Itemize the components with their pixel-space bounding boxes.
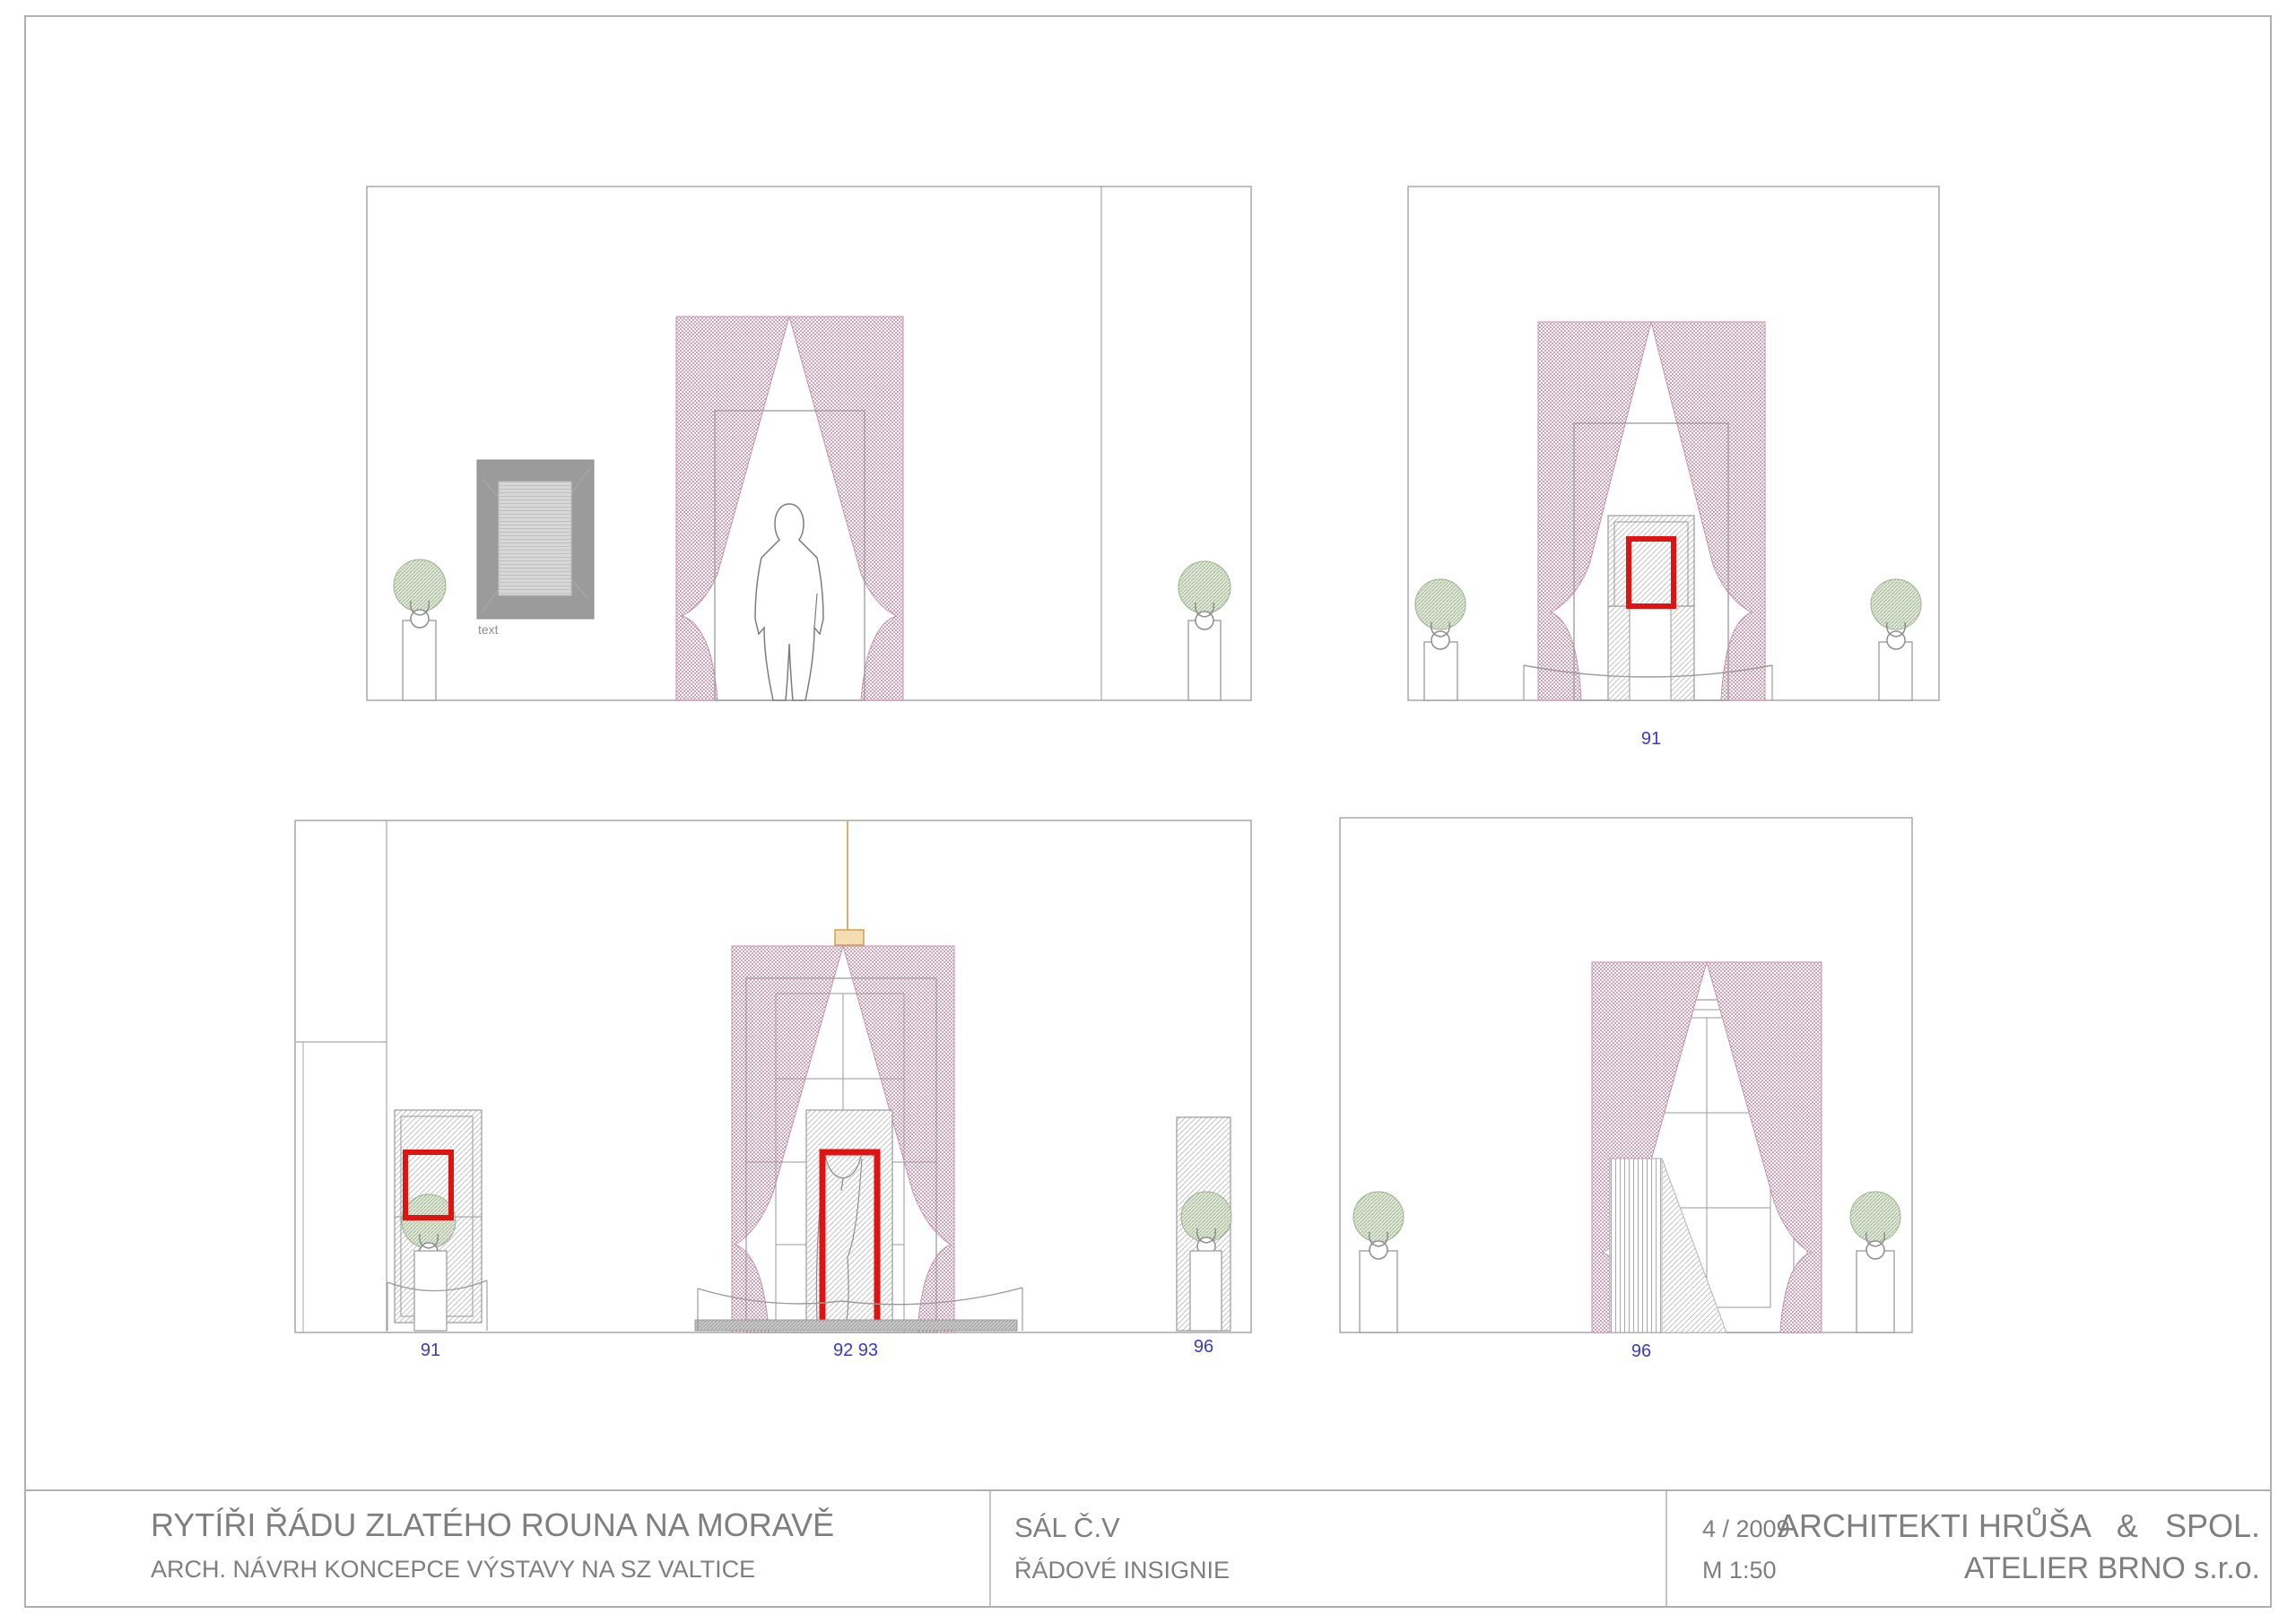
pedestal [1360,1251,1397,1332]
pedestal [1879,642,1912,700]
topiary-sphere [1353,1192,1404,1242]
topiary-sphere [1178,561,1231,613]
topiary-sphere [1850,1192,1900,1242]
sheet-scale: M 1:50 [1702,1557,1777,1584]
picture-canvas [499,482,571,595]
elevation-drawing-canvas: text [0,0,2296,1623]
pedestal [1424,642,1457,700]
elevation-top-left: text [367,187,1251,700]
pedestal [1188,621,1221,700]
pleated-sheer-curtain [1610,1159,1662,1332]
elevation-bottom-right: 96 [1340,818,1912,1361]
topiary-sphere [1415,579,1465,629]
pedestal [403,621,436,700]
sheet-content: ŘÁDOVÉ INSIGNIE [1014,1556,1230,1584]
exhibit-number-label: 91 [1641,729,1661,749]
drawing-sheet: text [0,0,2296,1623]
project-subtitle: ARCH. NÁVRH KONCEPCE VÝSTAVY NA SZ VALTI… [151,1556,755,1583]
pedestal [1190,1251,1222,1331]
picture-caption: text [478,622,499,637]
pedestal [1857,1251,1894,1332]
exhibit-number-label: 92 93 [833,1341,878,1360]
architect-firm: ARCHITEKTI HRŮŠA & SPOL. [1778,1506,2260,1544]
topiary-sphere [1871,579,1921,629]
elevation-bottom-left: 91 92 93 96 [295,820,1251,1360]
topiary-sphere [1181,1192,1231,1242]
room-name: SÁL Č.V [1014,1512,1120,1543]
project-title: RYTÍŘI ŘÁDU ZLATÉHO ROUNA NA MORAVĚ [151,1506,834,1543]
topiary-sphere [402,1194,456,1248]
exhibit-number-label: 91 [421,1341,440,1360]
elevation-top-right: 91 [1408,187,1939,749]
lamp-fixture [835,930,864,945]
stage-plinth [695,1320,1017,1331]
studio-name: ATELIER BRNO s.r.o. [1964,1551,2260,1585]
exhibit-number-label: 96 [1631,1341,1651,1361]
topiary-sphere [394,560,446,612]
display-case-base [1630,606,1671,700]
exhibit-number-label: 96 [1194,1337,1213,1357]
